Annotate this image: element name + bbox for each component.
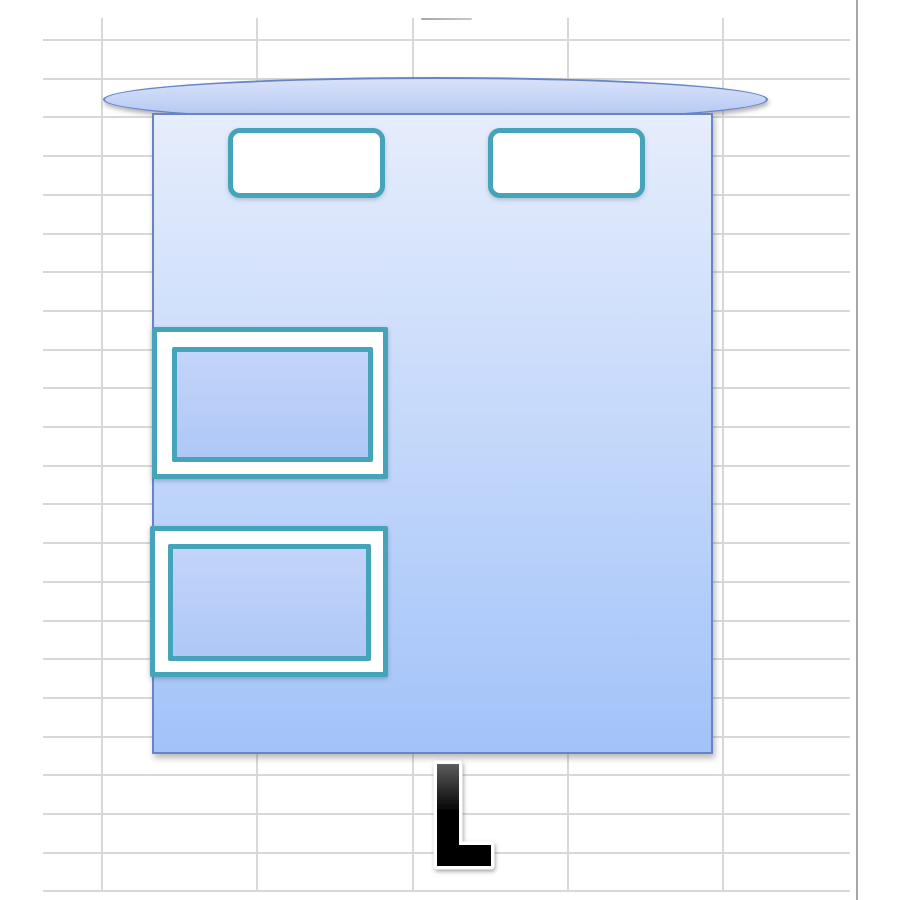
cell-border-segment bbox=[421, 18, 472, 21]
gridline-h bbox=[43, 890, 850, 892]
gridline-v bbox=[101, 18, 103, 891]
sheet-right-edge-line bbox=[856, 0, 858, 900]
letter-l-shape[interactable]: L bbox=[425, 750, 505, 880]
gridline-h bbox=[43, 39, 850, 41]
spreadsheet-canvas: { "canvas": {"width": 900, "height": 900… bbox=[0, 0, 900, 900]
window-lower-shape[interactable] bbox=[150, 526, 388, 677]
window-upper-shape[interactable] bbox=[152, 327, 388, 479]
top-slot-right-shape[interactable] bbox=[488, 128, 645, 198]
top-slot-left-shape[interactable] bbox=[228, 128, 385, 198]
gridline-v bbox=[722, 18, 724, 891]
letter-l-glyph bbox=[437, 764, 491, 866]
window-lower-pane bbox=[168, 544, 371, 661]
window-upper-pane bbox=[172, 347, 373, 462]
